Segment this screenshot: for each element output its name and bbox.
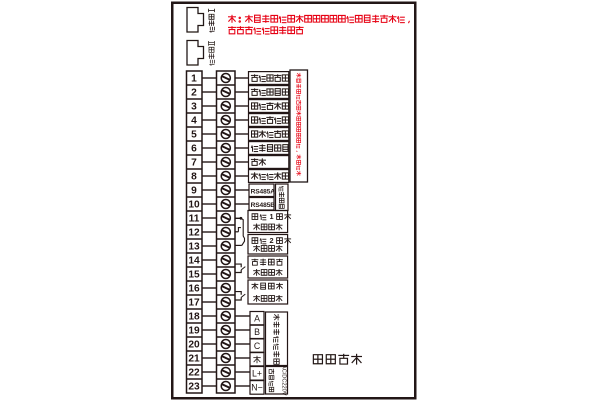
svg-text:RS485A: RS485A — [251, 188, 276, 195]
svg-text:A: A — [254, 313, 260, 323]
svg-text:12: 12 — [188, 227, 200, 238]
svg-text:10: 10 — [188, 199, 200, 210]
svg-text:8: 8 — [191, 171, 197, 182]
svg-text:13: 13 — [188, 241, 200, 252]
svg-text:18: 18 — [188, 311, 200, 322]
svg-text:11: 11 — [189, 213, 200, 224]
svg-text:21: 21 — [188, 353, 200, 364]
svg-text:15: 15 — [188, 269, 200, 280]
svg-text:1: 1 — [191, 73, 197, 84]
svg-text:4: 4 — [191, 115, 197, 126]
svg-text:C: C — [254, 341, 261, 351]
svg-text:2: 2 — [191, 87, 197, 98]
svg-text:3: 3 — [191, 101, 197, 112]
svg-text:19: 19 — [188, 325, 200, 336]
svg-text:7: 7 — [191, 157, 197, 168]
svg-text:14: 14 — [188, 255, 200, 266]
svg-text:9: 9 — [191, 185, 197, 196]
svg-text:1: 1 — [270, 212, 274, 221]
svg-text:RS485B: RS485B — [251, 202, 276, 209]
svg-text:2: 2 — [270, 236, 274, 245]
svg-text:20: 20 — [188, 339, 200, 350]
svg-text:23: 23 — [188, 381, 200, 392]
svg-text:N−: N− — [251, 383, 263, 393]
svg-text:5: 5 — [191, 129, 197, 140]
svg-text:16: 16 — [188, 283, 200, 294]
svg-text:B: B — [254, 327, 260, 337]
svg-text:6: 6 — [191, 143, 197, 154]
svg-text:AC/DC220V: AC/DC220V — [280, 365, 286, 396]
svg-text:L+: L+ — [252, 369, 262, 379]
svg-text:17: 17 — [188, 297, 200, 308]
svg-text:22: 22 — [188, 367, 200, 378]
